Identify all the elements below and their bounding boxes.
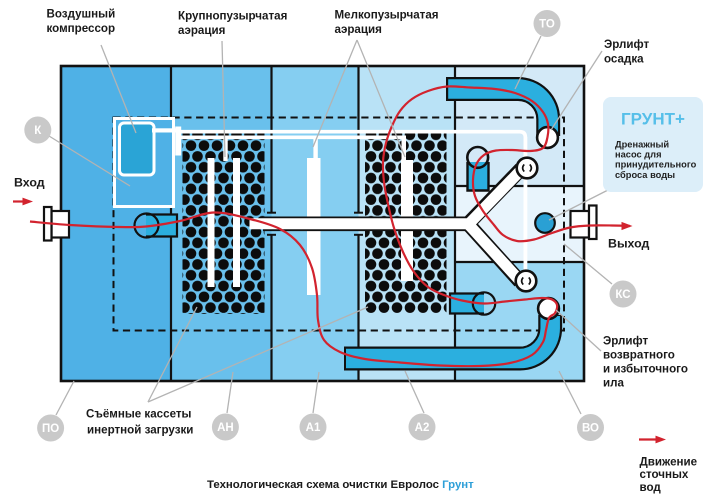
svg-text:Мелкопузырчатаяаэрация: Мелкопузырчатаяаэрация — [335, 9, 439, 37]
svg-text:Вход: Вход — [14, 176, 45, 190]
svg-text:А1: А1 — [306, 422, 321, 434]
svg-text:Эрлифтосадка: Эрлифтосадка — [604, 38, 650, 66]
svg-text:ГРУНТ+: ГРУНТ+ — [621, 110, 685, 129]
svg-text:Воздушныйкомпрессор: Воздушныйкомпрессор — [47, 8, 116, 36]
svg-text:А2: А2 — [415, 422, 430, 434]
svg-text:Технологическая схема очистки: Технологическая схема очистки Евролос Гр… — [207, 479, 474, 491]
svg-text:Крупнопузырчатаяаэрация: Крупнопузырчатаяаэрация — [178, 10, 287, 38]
svg-text:ПО: ПО — [42, 423, 59, 435]
svg-text:ТО: ТО — [539, 19, 555, 31]
svg-text:Движениесточныхвод: Движениесточныхвод — [640, 456, 698, 494]
svg-text:К: К — [34, 125, 42, 137]
svg-text:АН: АН — [217, 422, 234, 434]
svg-text:ВО: ВО — [582, 423, 599, 435]
svg-text:Съёмные кассетыинертной загруз: Съёмные кассетыинертной загрузки — [86, 408, 193, 437]
svg-text:Выход: Выход — [608, 237, 650, 251]
svg-text:Эрлифтвозвратногои избыточного: Эрлифтвозвратногои избыточногоила — [603, 335, 688, 390]
svg-text:КС: КС — [615, 289, 630, 301]
